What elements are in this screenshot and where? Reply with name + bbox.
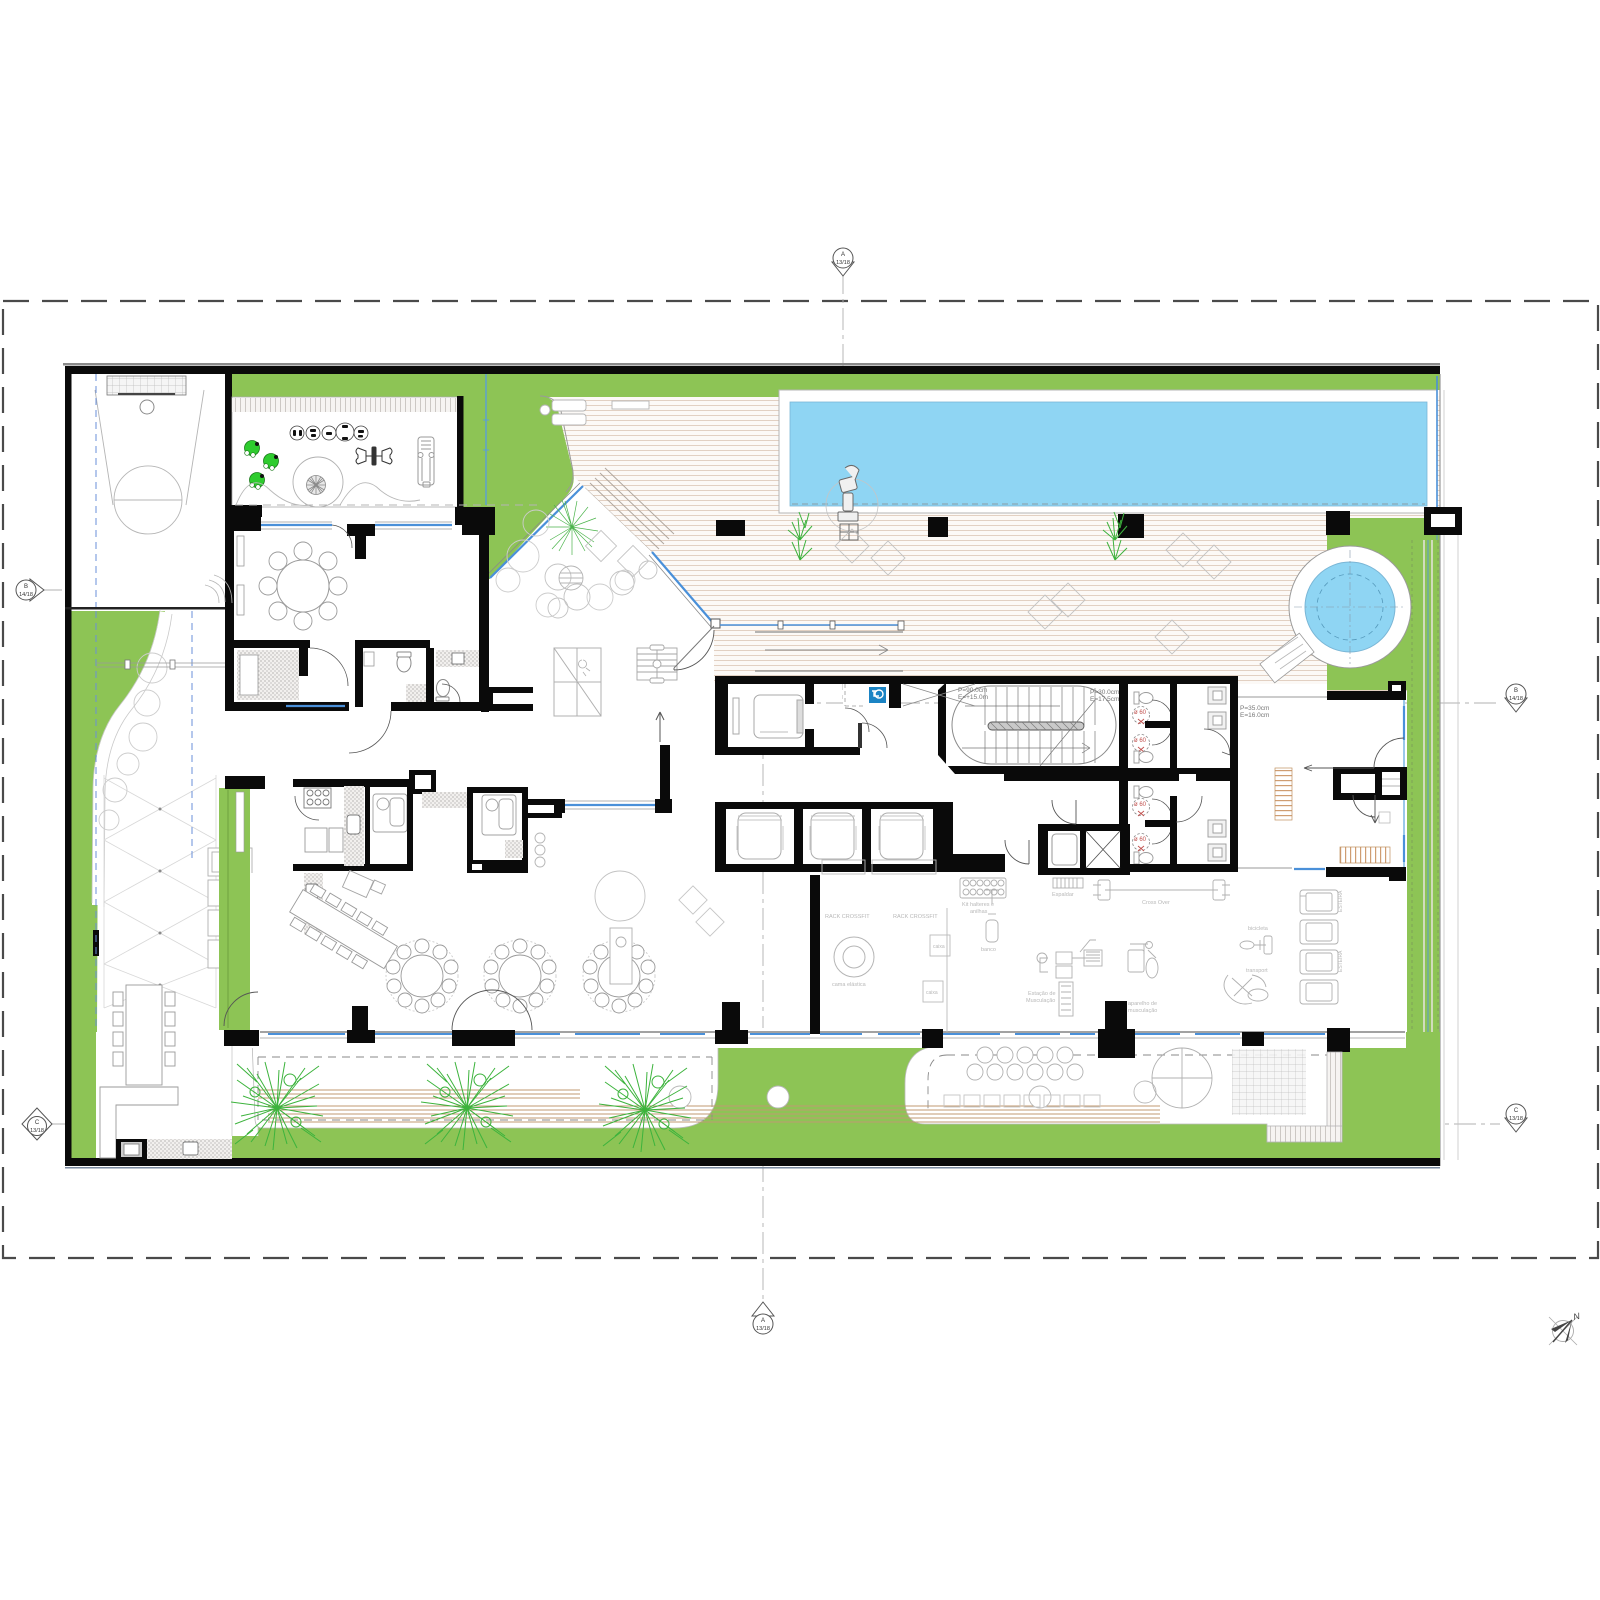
svg-text:14/18: 14/18	[19, 592, 33, 598]
svg-text:B: B	[1514, 688, 1518, 694]
svg-text:ESTEIRA: ESTEIRA	[1338, 890, 1344, 912]
svg-text:caixa: caixa	[933, 944, 945, 950]
svg-text:caixa: caixa	[926, 990, 938, 996]
svg-text:14/18: 14/18	[1509, 696, 1523, 702]
svg-text:C: C	[35, 1120, 40, 1126]
svg-text:ø 60: ø 60	[1134, 710, 1147, 716]
svg-text:banco: banco	[981, 947, 996, 953]
svg-text:anilhas: anilhas	[970, 909, 988, 915]
svg-text:cama elástica: cama elástica	[832, 982, 867, 988]
svg-text:E=17.5cm: E=17.5cm	[1090, 696, 1119, 703]
svg-text:13/18: 13/18	[30, 1128, 44, 1134]
svg-text:transport: transport	[1246, 968, 1268, 974]
svg-text:Estação de: Estação de	[1028, 991, 1056, 997]
svg-text:Espaldar: Espaldar	[1052, 892, 1074, 898]
svg-text:musculação: musculação	[1128, 1008, 1157, 1014]
svg-text:ø 60: ø 60	[1134, 837, 1147, 843]
svg-text:RACK CROSSFIT: RACK CROSSFIT	[825, 914, 870, 920]
svg-text:C: C	[1514, 1108, 1519, 1114]
svg-text:ESTEIRA: ESTEIRA	[1338, 950, 1344, 972]
svg-text:RACK CROSSFIT: RACK CROSSFIT	[893, 914, 938, 920]
svg-text:ø 60: ø 60	[1134, 738, 1147, 744]
svg-text:13/18: 13/18	[1509, 1116, 1523, 1122]
svg-text:P=30.0cm: P=30.0cm	[1090, 689, 1119, 696]
svg-text:B: B	[24, 584, 28, 590]
svg-text:E=+15.0m: E=+15.0m	[958, 694, 988, 701]
svg-text:Cross Over: Cross Over	[1142, 900, 1170, 906]
svg-text:13/18: 13/18	[756, 1326, 770, 1332]
svg-text:13/18: 13/18	[836, 260, 850, 266]
svg-text:E=16.0cm: E=16.0cm	[1240, 712, 1269, 719]
svg-text:P=90.0cm: P=90.0cm	[958, 687, 987, 694]
svg-text:A: A	[761, 1318, 765, 1324]
svg-text:Kit halteres e: Kit halteres e	[962, 902, 994, 908]
svg-text:A: A	[841, 252, 845, 258]
svg-text:bicicleta: bicicleta	[1248, 926, 1269, 932]
svg-text:Musculação: Musculação	[1026, 998, 1055, 1004]
svg-text:P=35.0cm: P=35.0cm	[1240, 705, 1269, 712]
svg-text:aparelho de: aparelho de	[1128, 1001, 1157, 1007]
svg-text:ø 60: ø 60	[1134, 802, 1147, 808]
